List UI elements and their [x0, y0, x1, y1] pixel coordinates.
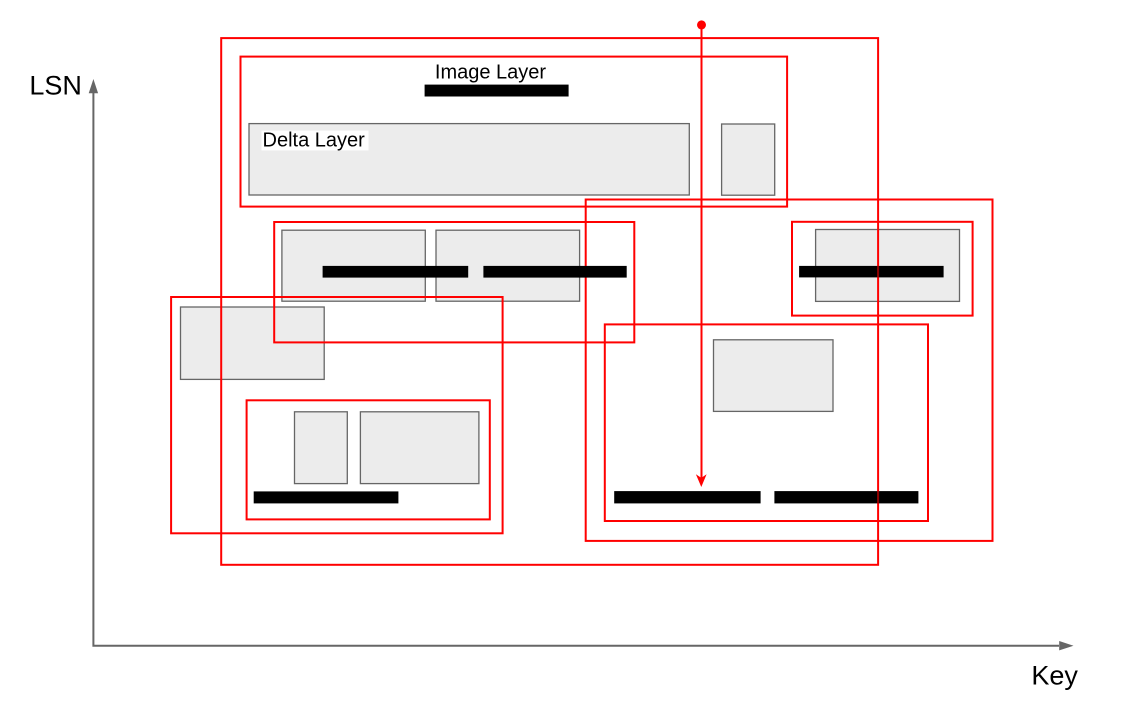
svg-text:Delta Layer: Delta Layer — [263, 130, 366, 152]
svg-text:Image Layer: Image Layer — [435, 62, 547, 84]
svg-text:LSN: LSN — [29, 71, 82, 101]
svg-text:Key: Key — [1031, 660, 1078, 690]
